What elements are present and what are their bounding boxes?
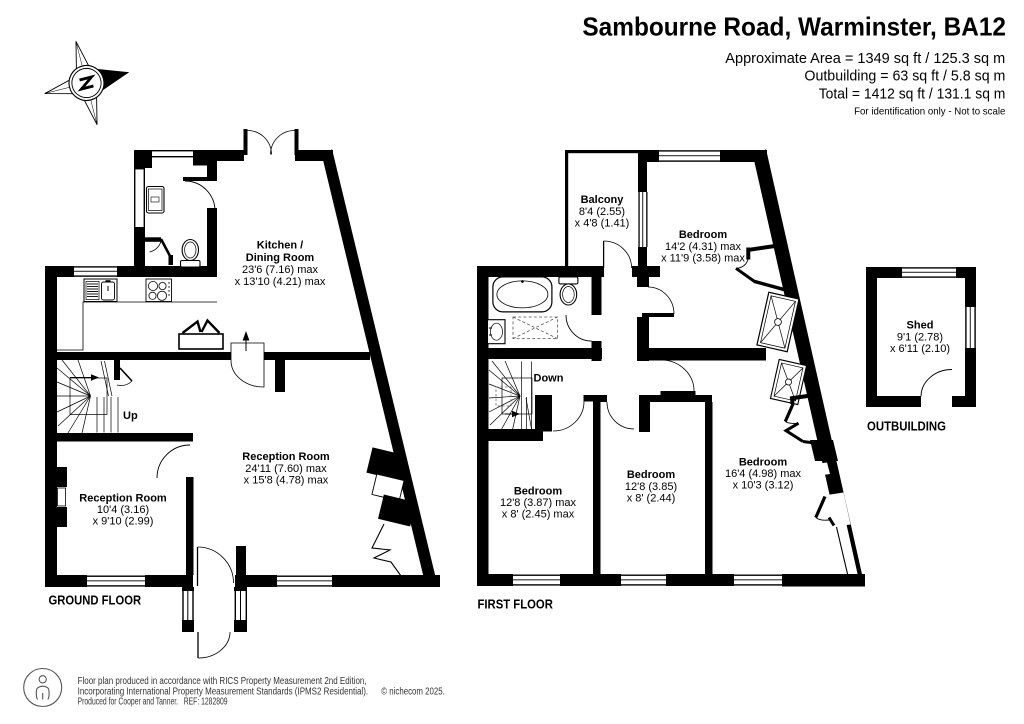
- svg-text:For identification only - Not: For identification only - Not to scale: [854, 106, 1005, 118]
- svg-text:14'2 (4.31) max: 14'2 (4.31) max: [665, 241, 742, 253]
- svg-text:Reception Room: Reception Room: [242, 451, 330, 463]
- svg-text:Approximate Area = 1349 sq ft: Approximate Area = 1349 sq ft / 125.3 sq…: [725, 50, 1005, 67]
- svg-text:16'4 (4.98) max: 16'4 (4.98) max: [725, 468, 802, 480]
- svg-text:Dining Room: Dining Room: [246, 252, 315, 264]
- svg-text:x 15'8 (4.78) max: x 15'8 (4.78) max: [244, 475, 329, 487]
- svg-text:Bedroom: Bedroom: [627, 469, 676, 481]
- svg-text:GROUND FLOOR: GROUND FLOOR: [49, 593, 142, 608]
- svg-text:9'1 (2.78): 9'1 (2.78): [897, 332, 943, 344]
- svg-text:8'4 (2.55): 8'4 (2.55): [579, 206, 625, 218]
- svg-text:x 13'10 (4.21) max: x 13'10 (4.21) max: [235, 276, 326, 288]
- svg-text:x 10'3 (3.12): x 10'3 (3.12): [733, 480, 794, 492]
- svg-text:x 4'8 (1.41): x 4'8 (1.41): [575, 218, 630, 230]
- svg-text:Produced for Cooper and Tanner: Produced for Cooper and Tanner. REF: 128…: [78, 697, 228, 708]
- svg-text:Kitchen /: Kitchen /: [257, 240, 303, 252]
- svg-text:x 6'11 (2.10): x 6'11 (2.10): [890, 343, 950, 355]
- svg-text:Up: Up: [123, 410, 138, 422]
- svg-text:Total = 1412 sq ft / 131.1 sq: Total = 1412 sq ft / 131.1 sq m: [819, 86, 1006, 103]
- svg-text:Bedroom: Bedroom: [514, 486, 563, 498]
- svg-text:FIRST FLOOR: FIRST FLOOR: [478, 597, 554, 612]
- svg-text:© nichecom 2025.: © nichecom 2025.: [381, 687, 445, 698]
- svg-text:Shed: Shed: [907, 320, 934, 332]
- svg-text:23'6 (7.16) max: 23'6 (7.16) max: [242, 264, 319, 276]
- svg-text:Down: Down: [534, 373, 564, 385]
- svg-text:x 8' (2.45) max: x 8' (2.45) max: [502, 509, 575, 521]
- svg-text:12'8 (3.87) max: 12'8 (3.87) max: [500, 497, 577, 509]
- svg-text:Outbuilding = 63 sq ft / 5.8 s: Outbuilding = 63 sq ft / 5.8 sq m: [804, 68, 1005, 85]
- svg-text:Reception Room: Reception Room: [79, 493, 167, 505]
- svg-text:Sambourne Road, Warminster, BA: Sambourne Road, Warminster, BA12: [582, 12, 1006, 42]
- svg-text:Bedroom: Bedroom: [679, 229, 728, 241]
- svg-text:x 9'10 (2.99): x 9'10 (2.99): [93, 516, 154, 528]
- svg-text:x 8' (2.44): x 8' (2.44): [627, 493, 676, 505]
- svg-text:x 11'9 (3.58) max: x 11'9 (3.58) max: [661, 253, 745, 265]
- svg-text:24'11 (7.60) max: 24'11 (7.60) max: [245, 463, 327, 475]
- svg-text:Bedroom: Bedroom: [739, 457, 788, 469]
- svg-text:OUTBUILDING: OUTBUILDING: [867, 419, 946, 434]
- svg-text:10'4 (3.16): 10'4 (3.16): [97, 504, 149, 516]
- svg-text:Balcony: Balcony: [581, 194, 625, 206]
- svg-text:Floor plan produced in accorda: Floor plan produced in accordance with R…: [78, 676, 367, 687]
- svg-text:12'8 (3.85): 12'8 (3.85): [625, 481, 677, 493]
